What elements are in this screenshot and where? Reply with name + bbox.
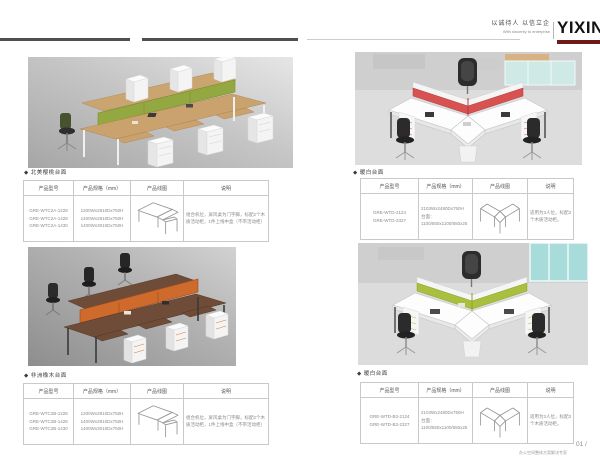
spec-cell: 2103Wx2480Dx750H 台面： 1100/550x1100/550x2… [419, 194, 473, 240]
col-spec: 产品规格（mm） [419, 179, 473, 194]
col-model: 产品型号 [24, 181, 74, 196]
product-render-beech-workstation [28, 57, 293, 168]
model-number: GRE-WTC2B-1428 [26, 418, 71, 426]
catalog-page: { "header": { "slogan_cn": "以诚待人 以信立企", … [0, 0, 600, 473]
product-render-y-red-workstation [355, 52, 582, 165]
model-number: GRE-WTC2B-1228 [26, 410, 71, 418]
model-cell: GRE-WTC2B-1228 GRE-WTC2B-1428 GRE-WTC2B-… [24, 399, 74, 445]
model-cell: GRE-WTD-B3-2124 GRE-WTD-B3-2327 [361, 398, 419, 444]
col-model: 产品型号 [361, 179, 419, 194]
spec-cell: 1200Wx2810Dx750H 1400Wx2810Dx750H 1400Wx… [74, 399, 131, 445]
spec-line: 2103Wx2480Dx750H [421, 409, 470, 417]
spec-line: 1400Wx3010Dx750H [76, 222, 128, 230]
spec-table-y-red: 产品型号 产品规格（mm） 产品线图 说明 GRE-WTD-2124 GRE-W… [360, 178, 574, 240]
table-row: GRE-WTC2B-1228 GRE-WTC2B-1428 GRE-WTC2B-… [24, 399, 269, 445]
spec-line: 台面： [421, 213, 470, 221]
line-drawing-cell [131, 196, 184, 242]
col-notes: 说明 [184, 384, 269, 399]
spec-table-walnut: 产品型号 产品规格（mm） 产品线图 说明 GRE-WTC2B-1228 GRE… [23, 383, 269, 445]
line-drawing-cell [131, 399, 184, 445]
col-spec: 产品规格（mm） [419, 383, 473, 398]
description-text: 适用为3人位，标配3个木质活动柜。 [530, 414, 571, 428]
model-number: GRE-WTD-2124 [363, 209, 416, 217]
model-number: GRE-WTD-B3-2124 [363, 413, 416, 421]
caption-beech: ◆ 北美樱桃台面 [24, 168, 67, 176]
brand-logo: YIXIN [557, 18, 600, 38]
product-render-walnut-workstation [28, 247, 236, 366]
line-drawing-cell [473, 194, 528, 240]
table-header-row: 产品型号 产品规格（mm） 产品线图 说明 [361, 383, 574, 398]
walnut-workstation-scene [28, 247, 236, 366]
header-slogan: 以诚待人 以信立企 With sincerity to enterprise [462, 21, 550, 34]
description-cell: 组合机位，屏风桌为门字脚，标配2个木质活动柜，1件上线中盒（不带活动柜） [184, 196, 269, 242]
product-render-y-green-workstation [358, 243, 588, 365]
description-text: 组合机位，屏风桌为门字脚，标配2个木质活动柜，1件上线中盒（不带活动柜） [186, 212, 266, 226]
model-cell: GRE-WTD-2124 GRE-WTD-2327 [361, 194, 419, 240]
description-cell: 适用为3人位，标配3个木质活动柜。 [528, 398, 574, 444]
header-rule-dark-left [0, 38, 130, 41]
col-drawing: 产品线图 [473, 383, 528, 398]
description-text: 适用为3人位，标配3个木质活动柜。 [530, 210, 571, 224]
table-header-row: 产品型号 产品规格（mm） 产品线图 说明 [24, 181, 269, 196]
description-text: 组合机位，屏风桌为门字脚，标配2个木质活动柜，1件上线中盒（不带活动柜） [186, 415, 266, 429]
y-red-workstation-scene [355, 52, 582, 165]
slogan-english: With sincerity to enterprise [462, 29, 550, 34]
col-drawing: 产品线图 [473, 179, 528, 194]
col-spec: 产品规格（mm） [74, 181, 131, 196]
col-model: 产品型号 [24, 384, 74, 399]
footer-tagline: 办公空间整体方案解决专家 [519, 450, 567, 456]
header-divider [553, 22, 554, 39]
spec-table-beech: 产品型号 产品规格（mm） 产品线图 说明 GRE-WTC2A-1228 GRE… [23, 180, 269, 242]
y-cluster-line-drawing [476, 196, 524, 236]
col-model: 产品型号 [361, 383, 419, 398]
model-number: GRE-WTC2B-1430 [26, 425, 71, 433]
caption-walnut: ◆ 非洲橡木台面 [24, 371, 67, 379]
l-cluster-line-drawing [133, 401, 183, 441]
col-notes: 说明 [528, 179, 574, 194]
description-cell: 适用为3人位，标配3个木质活动柜。 [528, 194, 574, 240]
spec-line: 2103Wx2480Dx750H [421, 205, 470, 213]
beech-workstation-scene [28, 57, 293, 168]
model-number: GRE-WTD-2327 [363, 217, 416, 225]
slogan-chinese: 以诚待人 以信立企 [462, 21, 550, 29]
spec-line: 1400Wx3010Dx750H [76, 425, 128, 433]
spec-line: 1400Wx2810Dx750H [76, 418, 128, 426]
spec-line: 1100/550x1100/550x25 [421, 424, 470, 432]
col-spec: 产品规格（mm） [74, 384, 131, 399]
header-rule-light [307, 39, 520, 40]
table-header-row: 产品型号 产品规格（mm） 产品线图 说明 [361, 179, 574, 194]
logo-underline [557, 40, 600, 44]
y-cluster-line-drawing [476, 400, 524, 440]
model-number: GRE-WTC2A-1428 [26, 215, 71, 223]
col-drawing: 产品线图 [131, 181, 184, 196]
caption-warm-white-2: ◆ 暖白台面 [357, 369, 388, 377]
model-cell: GRE-WTC2A-1228 GRE-WTC2A-1428 GRE-WTC2A-… [24, 196, 74, 242]
l-cluster-line-drawing [133, 198, 183, 238]
description-cell: 组合机位，屏风桌为门字脚，标配2个木质活动柜，1件上线中盒（不带活动柜） [184, 399, 269, 445]
spec-line: 台面： [421, 417, 470, 425]
spec-table-y-green: 产品型号 产品规格（mm） 产品线图 说明 GRE-WTD-B3-2124 GR… [360, 382, 574, 444]
header-rule-dark-right [142, 38, 298, 41]
table-row: GRE-WTC2A-1228 GRE-WTC2A-1428 GRE-WTC2A-… [24, 196, 269, 242]
page-number: 01 / [576, 441, 587, 448]
spec-line: 1200Wx2810Dx750H [76, 410, 128, 418]
model-number: GRE-WTC2A-1430 [26, 222, 71, 230]
table-row: GRE-WTD-B3-2124 GRE-WTD-B3-2327 2103Wx24… [361, 398, 574, 444]
spec-cell: 1200Wx2810Dx750H 1400Wx2810Dx750H 1400Wx… [74, 196, 131, 242]
col-notes: 说明 [184, 181, 269, 196]
model-number: GRE-WTC2A-1228 [26, 207, 71, 215]
caption-warm-white-1: ◆ 暖白台面 [353, 168, 384, 176]
y-green-workstation-scene [358, 243, 588, 365]
spec-line: 1200Wx2810Dx750H [76, 207, 128, 215]
spec-line: 1400Wx2810Dx750H [76, 215, 128, 223]
table-row: GRE-WTD-2124 GRE-WTD-2327 2103Wx2480Dx75… [361, 194, 574, 240]
col-notes: 说明 [528, 383, 574, 398]
line-drawing-cell [473, 398, 528, 444]
col-drawing: 产品线图 [131, 384, 184, 399]
spec-cell: 2103Wx2480Dx750H 台面： 1100/550x1100/550x2… [419, 398, 473, 444]
model-number: GRE-WTD-B3-2327 [363, 421, 416, 429]
table-header-row: 产品型号 产品规格（mm） 产品线图 说明 [24, 384, 269, 399]
spec-line: 1100/550x1100/550x25 [421, 220, 470, 228]
